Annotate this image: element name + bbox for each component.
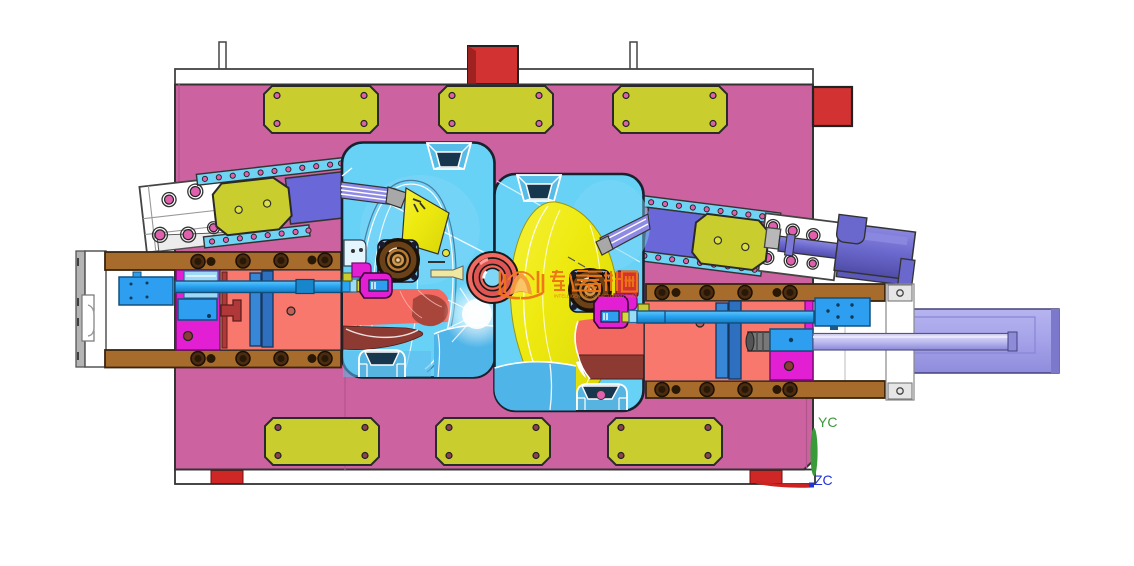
svg-text:YC: YC [818, 414, 837, 430]
svg-text:ZC: ZC [814, 472, 833, 488]
svg-text:INTELLIGENT MANUFACTURING DATA: INTELLIGENT MANUFACTURING DATA [554, 294, 638, 300]
